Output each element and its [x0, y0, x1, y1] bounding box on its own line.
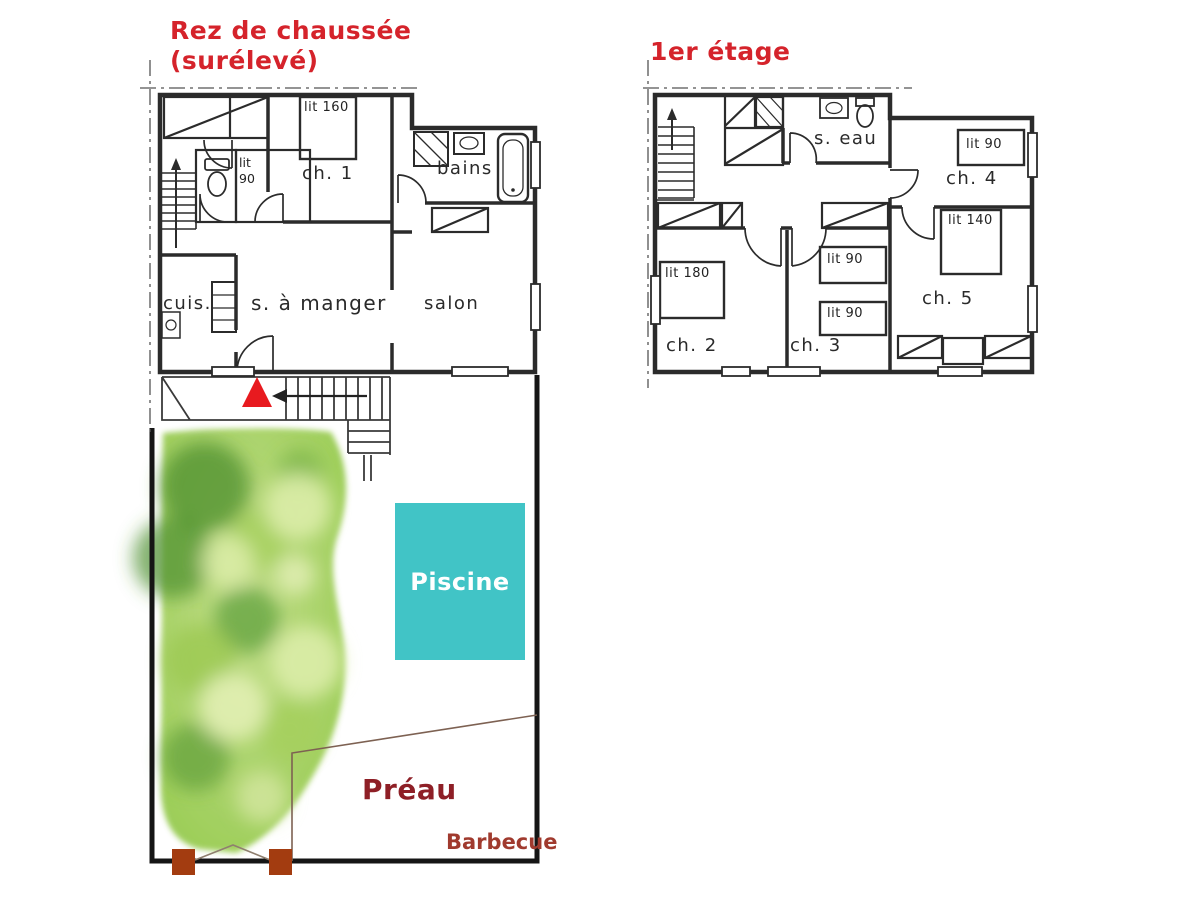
pool: Piscine: [395, 503, 525, 660]
gf-entry-closet: [164, 97, 268, 138]
sink-icon: [454, 133, 484, 154]
ff-hall-closets: [658, 203, 888, 228]
ff-ch3-bed2-label: lit 90: [827, 306, 863, 321]
ground-floor-subtitle: (surélevé): [170, 46, 319, 75]
ff-ch5-bed-label: lit 140: [948, 213, 993, 228]
gf-small-room-bed-label: lit 90: [239, 155, 255, 187]
ff-stairs-icon: [655, 108, 694, 200]
ff-ch2-bed-label: lit 180: [665, 266, 710, 281]
ff-shower-icon: [756, 97, 783, 127]
bathtub-icon: [498, 134, 528, 202]
preau-label: Préau: [362, 773, 457, 806]
gf-wc: [196, 150, 236, 222]
ff-toilet-icon: [856, 98, 874, 127]
ff-showerroom-label: s. eau: [814, 128, 877, 149]
gf-ch1-label: ch. 1: [302, 163, 354, 184]
plan-linework: [0, 0, 1200, 900]
ff-closet-block: [725, 95, 783, 165]
ff-ch5-label: ch. 5: [922, 288, 974, 309]
entrance-marker: [242, 377, 367, 407]
ground-floor-plan: [160, 95, 540, 376]
gf-kitchen-label: cuis.: [163, 293, 212, 314]
gate-post-right: [269, 849, 292, 875]
gate-post-left: [172, 849, 195, 875]
ff-ch4-label: ch. 4: [946, 168, 998, 189]
first-floor-title: 1er étage: [650, 37, 791, 66]
gf-hall-closet: [432, 208, 488, 232]
entrance-arrow-icon: [272, 389, 287, 403]
ff-showerroom-fixtures: [820, 98, 874, 127]
gf-ch1-bed-label: lit 160: [304, 100, 349, 115]
ground-floor-title: Rez de chaussée: [170, 16, 411, 45]
ff-ch2-label: ch. 2: [666, 335, 718, 356]
ff-ch4-bed-label: lit 90: [966, 137, 1002, 152]
gf-dining-label: s. à manger: [251, 291, 387, 315]
floorplan-image: Piscine Rez de chaussée (surélevé) 1er é…: [0, 0, 1200, 900]
ff-ch3-bed1-label: lit 90: [827, 252, 863, 267]
garden-area: [133, 428, 346, 853]
gf-bathroom-label: bains: [437, 158, 493, 179]
gf-stairs-icon: [162, 158, 196, 248]
gf-inner-walls: [160, 95, 535, 372]
gf-living-label: salon: [424, 293, 479, 314]
ff-ch5-closets: [898, 336, 1031, 364]
ff-ch3-label: ch. 3: [790, 335, 842, 356]
pool-label: Piscine: [410, 568, 509, 596]
ff-sink-icon: [820, 98, 848, 118]
gf-outer-walls: [160, 95, 535, 372]
entrance-triangle-icon: [242, 377, 272, 407]
barbecue-label: Barbecue: [446, 830, 557, 854]
